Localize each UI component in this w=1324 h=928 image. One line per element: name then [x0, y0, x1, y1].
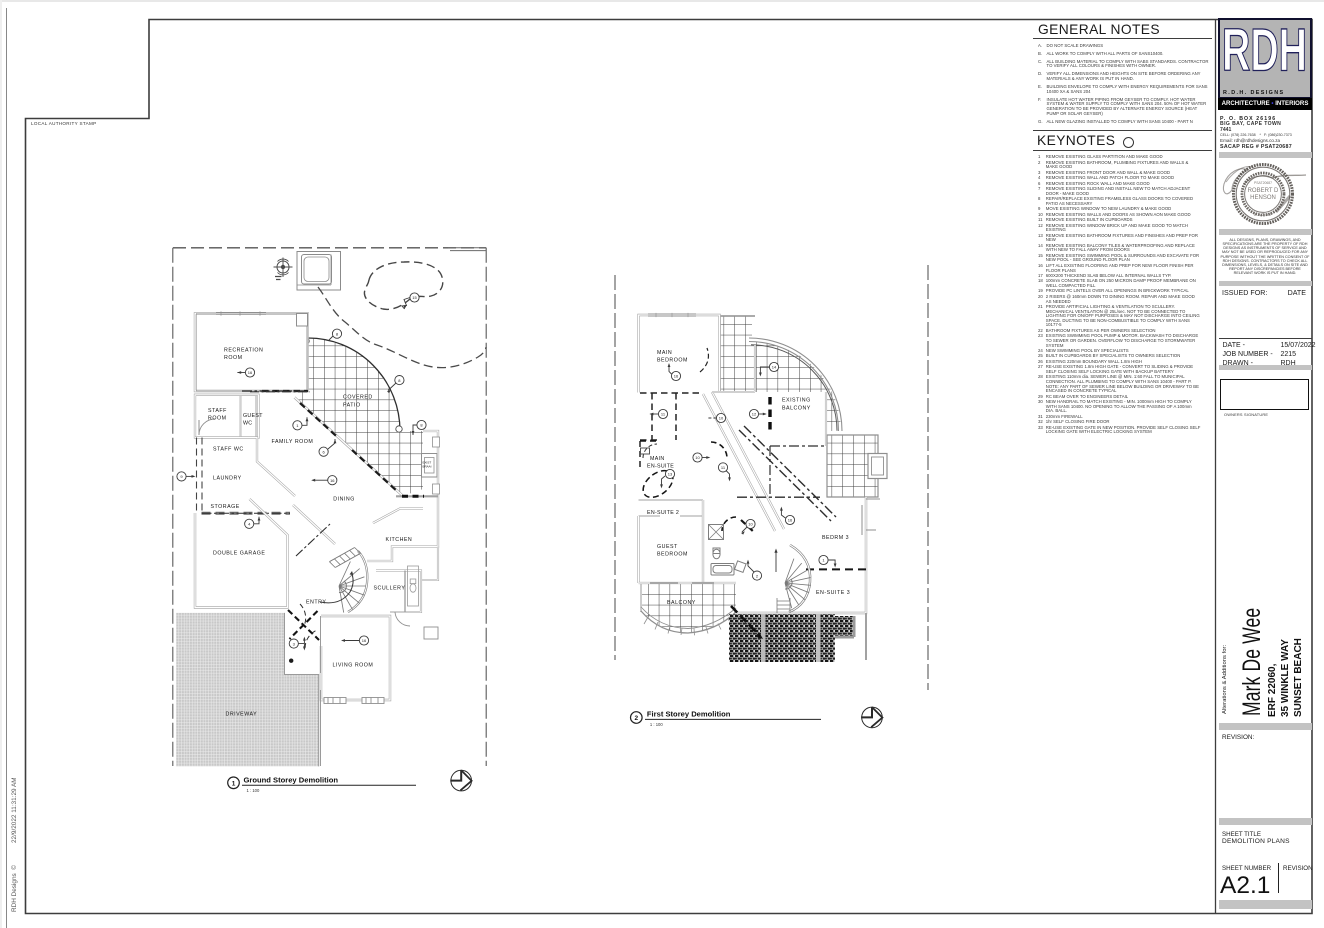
svg-text:BRAAI: BRAAI [423, 465, 432, 469]
svg-text:16: 16 [362, 638, 367, 643]
svg-text:EXISTING: EXISTING [782, 398, 811, 404]
svg-text:ROBERT D: ROBERT D [1248, 188, 1279, 194]
svg-text:LAUNDRY: LAUNDRY [213, 476, 242, 482]
svg-text:12: 12 [752, 412, 757, 417]
svg-text:BALCONY: BALCONY [667, 600, 696, 606]
svg-text:LIVING ROOM: LIVING ROOM [333, 663, 374, 669]
svg-text:14: 14 [772, 365, 777, 370]
svg-text:16: 16 [674, 374, 679, 379]
svg-text:DOUBLE GARAGE: DOUBLE GARAGE [213, 551, 265, 557]
svg-text:BEDROOM: BEDROOM [657, 552, 688, 558]
svg-text:2: 2 [634, 715, 638, 722]
svg-text:16: 16 [330, 478, 335, 483]
svg-text:EN-SUITE: EN-SUITE [647, 464, 674, 470]
svg-text:ENTRY: ENTRY [306, 600, 326, 606]
svg-text:STAFF WC: STAFF WC [213, 447, 244, 453]
svg-text:GUEST: GUEST [657, 544, 678, 550]
svg-text:EN-SUITE 2: EN-SUITE 2 [647, 510, 679, 516]
svg-text:DINING: DINING [333, 497, 355, 503]
svg-text:RDH: RDH [1222, 18, 1307, 84]
svg-text:PSAT20687: PSAT20687 [1254, 181, 1272, 185]
svg-text:1 : 100: 1 : 100 [650, 722, 663, 727]
svg-text:STAFF: STAFF [208, 408, 227, 414]
svg-text:STORAGE: STORAGE [211, 504, 240, 510]
svg-text:1: 1 [232, 780, 236, 787]
svg-text:First Storey Demolition: First Storey Demolition [647, 710, 731, 719]
svg-text:PATIO: PATIO [343, 403, 361, 409]
svg-text:FAMILY ROOM: FAMILY ROOM [272, 439, 314, 445]
svg-text:BALCONY: BALCONY [782, 406, 811, 412]
svg-text:HENSON: HENSON [1250, 195, 1276, 201]
svg-text:10: 10 [719, 416, 724, 421]
svg-text:WC: WC [243, 421, 252, 427]
svg-text:13: 13 [668, 472, 673, 477]
svg-text:10: 10 [748, 522, 753, 527]
svg-text:1 : 100: 1 : 100 [247, 788, 260, 793]
svg-text:MAIN: MAIN [657, 350, 672, 356]
svg-text:16: 16 [788, 518, 793, 523]
svg-text:GUEST: GUEST [243, 413, 263, 419]
svg-text:ROOM: ROOM [224, 355, 242, 361]
svg-text:DRIVEWAY: DRIVEWAY [226, 712, 258, 718]
svg-text:COVERED: COVERED [343, 395, 373, 401]
svg-text:Ground Storey Demolition: Ground Storey Demolition [244, 776, 339, 785]
svg-text:15: 15 [412, 295, 417, 300]
svg-text:S A C A P: S A C A P [1254, 212, 1273, 217]
svg-text:BEDROOM: BEDROOM [657, 358, 688, 364]
svg-text:ROOM: ROOM [208, 416, 226, 422]
svg-text:RECREATION: RECREATION [224, 348, 263, 354]
svg-text:10: 10 [695, 455, 700, 460]
svg-text:EN-SUITE 3: EN-SUITE 3 [816, 590, 850, 596]
svg-text:16: 16 [248, 370, 253, 375]
svg-text:KITCHEN: KITCHEN [386, 537, 413, 543]
svg-text:R.D.H. DESIGNS: R.D.H. DESIGNS [1223, 90, 1285, 96]
svg-text:MAIN: MAIN [650, 456, 664, 462]
svg-text:SCULLERY: SCULLERY [374, 586, 406, 592]
svg-text:BEDRM 3: BEDRM 3 [822, 535, 849, 541]
